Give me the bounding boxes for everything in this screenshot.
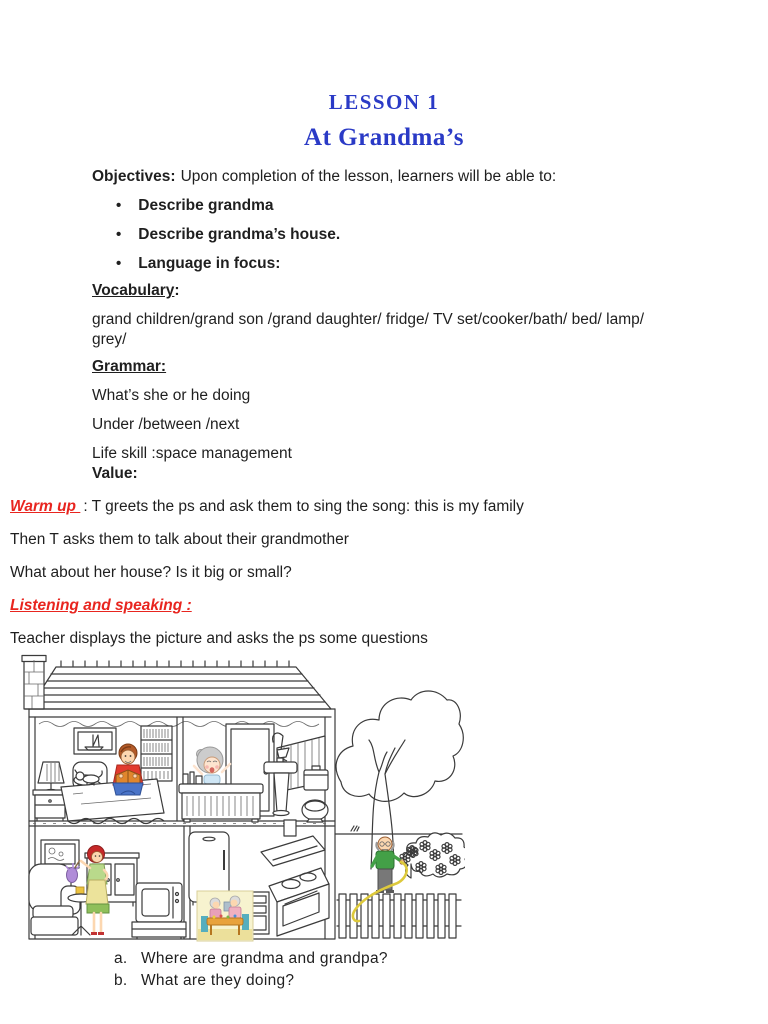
bullet-text: Describe grandma’s house.	[138, 225, 340, 245]
sailboat-picture	[74, 728, 116, 754]
toilet	[302, 766, 328, 822]
listening-label: Listening and speaking :	[10, 597, 192, 614]
question-b-marker: b.	[114, 970, 141, 992]
objectives-line: Objectives:Upon completion of the lesson…	[92, 167, 708, 187]
warmup-line: Warm up : T greets the ps and ask them t…	[10, 497, 728, 517]
living-room	[29, 840, 186, 939]
bullet-item-describe-grandma: •Describe grandma	[116, 196, 708, 216]
roof	[29, 661, 331, 709]
bathroom	[179, 724, 328, 822]
grammar-line1: What’s she or he doing	[92, 386, 708, 406]
bullet-item-describe-house: •Describe grandma’s house.	[116, 225, 708, 245]
bedside-lamp	[38, 762, 64, 794]
grandpa-watering	[372, 837, 404, 893]
bullet-icon: •	[116, 254, 121, 274]
tv-set	[132, 883, 186, 939]
bath-bottles	[183, 772, 202, 784]
kitchen	[189, 820, 329, 941]
house-illustration	[21, 654, 465, 942]
bullet-icon: •	[116, 196, 121, 216]
vocabulary-colon: :	[174, 282, 179, 299]
grammar-label: Grammar:	[92, 358, 166, 375]
warmup-label: Warm up	[10, 498, 80, 515]
comprehension-questions: a.Where are grandma and grandpa? b.What …	[114, 948, 768, 992]
procedure-section: Warm up : T greets the ps and ask them t…	[10, 497, 728, 649]
warmup-line3: What about her house? Is it big or small…	[10, 563, 728, 583]
lesson-title: At Grandma’s	[0, 124, 768, 152]
warmup-line2: Then T asks them to talk about their gra…	[10, 530, 728, 550]
nightstand	[33, 790, 67, 821]
objectives-intro: Upon completion of the lesson, learners …	[181, 168, 557, 185]
warmup-text: : T greets the ps and ask them to sing t…	[83, 498, 524, 515]
flower-bush	[400, 833, 465, 878]
grandparents-clipart	[197, 891, 253, 941]
listening-intro: Teacher displays the picture and asks th…	[10, 629, 728, 649]
objectives-label: Objectives:	[92, 168, 176, 185]
cooker	[243, 868, 329, 936]
bullet-text: Describe grandma	[138, 196, 273, 216]
grass-icon	[351, 826, 359, 831]
range-hood	[261, 820, 325, 866]
question-b-text: What are they doing?	[141, 972, 294, 989]
lesson-number: LESSON 1	[0, 90, 768, 115]
listening-heading: Listening and speaking :	[10, 596, 728, 616]
bedroom	[33, 726, 172, 824]
bullet-text: Language in focus:	[138, 254, 280, 274]
document-page: LESSON 1 At Grandma’s Objectives:Upon co…	[0, 0, 768, 1024]
bullet-item-language-focus: •Language in focus:	[116, 254, 708, 274]
grammar-line2: Under /between /next	[92, 415, 708, 435]
vocabulary-label: Vocabulary	[92, 282, 174, 299]
value-heading: Value:	[92, 464, 708, 484]
question-a-marker: a.	[114, 948, 141, 970]
vocabulary-line2: grey/	[92, 330, 708, 350]
grammar-heading: Grammar:	[92, 357, 708, 377]
bullet-icon: •	[116, 225, 121, 245]
vocabulary-line1: grand children/grand son /grand daughter…	[92, 310, 708, 330]
boy-reading	[113, 744, 143, 795]
picket-fence	[337, 894, 461, 938]
chimney	[22, 656, 46, 710]
vocabulary-heading: Vocabulary:	[92, 281, 708, 301]
bookshelf	[141, 726, 172, 781]
question-a-text: Where are grandma and grandpa?	[141, 950, 388, 967]
grammar-line3: Life skill :space management	[92, 444, 708, 464]
question-b: b.What are they doing?	[114, 970, 768, 992]
objectives-section: Objectives:Upon completion of the lesson…	[92, 167, 708, 484]
question-a: a.Where are grandma and grandpa?	[114, 948, 768, 970]
